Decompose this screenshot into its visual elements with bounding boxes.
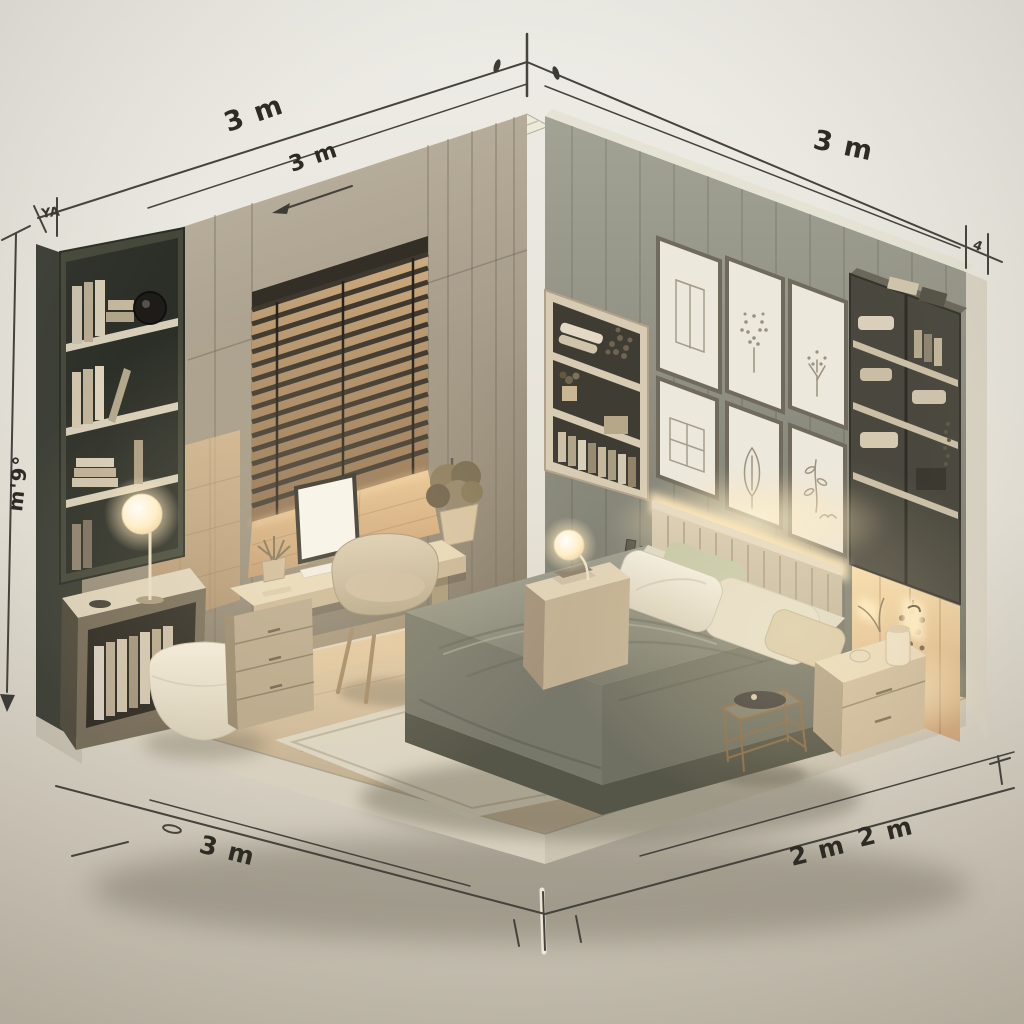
scene-svg: 3 m 3 m 3 m m'9° YA 3 m 2 m 2 m 4: [0, 0, 1024, 1024]
dim-label-left-top-tick: YA: [39, 205, 60, 223]
isometric-bedroom-diagram: 3 m 3 m 3 m m'9° YA 3 m 2 m 2 m 4: [0, 0, 1024, 1024]
